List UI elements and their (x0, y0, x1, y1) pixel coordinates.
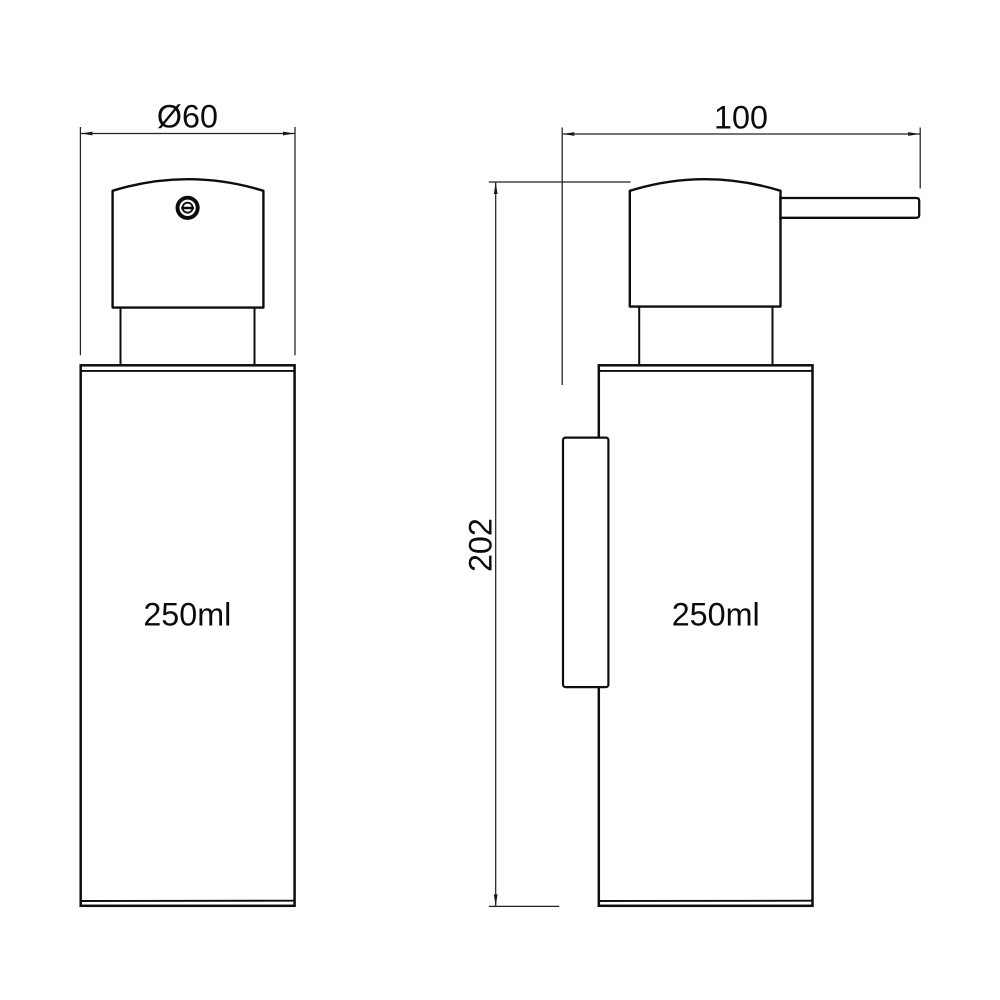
svg-text:250ml: 250ml (143, 597, 231, 633)
svg-text:202: 202 (462, 518, 498, 572)
svg-text:Ø60: Ø60 (157, 98, 218, 134)
svg-text:100: 100 (714, 100, 768, 136)
svg-text:250ml: 250ml (672, 597, 760, 633)
